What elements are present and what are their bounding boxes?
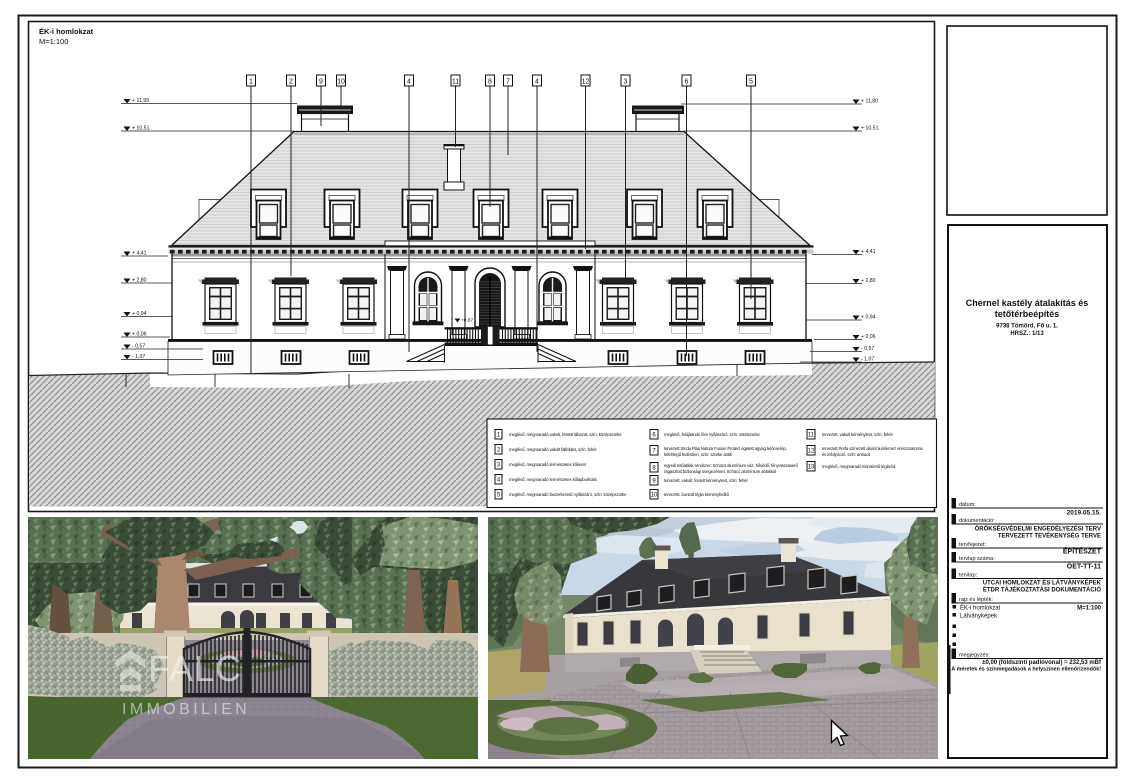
svg-text:9738 Tömörd, Fő u. 1.: 9738 Tömörd, Fő u. 1. <box>996 324 1058 330</box>
svg-text:M=1:100: M=1:100 <box>39 37 68 46</box>
svg-text:tervlap:: tervlap: <box>959 573 978 579</box>
svg-text:11: 11 <box>808 433 815 439</box>
svg-text:+ 0,94: + 0,94 <box>861 315 876 321</box>
svg-text:meglévő, megmaradó kisméretű t: meglévő, megmaradó kisméretű tégla-fal <box>822 464 895 469</box>
svg-text:+ 2,80: + 2,80 <box>132 278 147 284</box>
svg-text:és lefolyócső, szín: antracit: és lefolyócső, szín: antracit <box>822 452 871 457</box>
svg-text:ÉK-i homlokzat: ÉK-i homlokzat <box>960 605 1001 612</box>
svg-text:4: 4 <box>535 79 539 86</box>
svg-text:+ 11,99: + 11,99 <box>132 98 149 104</box>
svg-text:6: 6 <box>685 79 689 86</box>
svg-text:9: 9 <box>319 79 323 86</box>
svg-text:10: 10 <box>651 493 658 499</box>
svg-text:kétrétegű fedésben, szín: szür: kétrétegű fedésben, szín: szürke antik <box>664 452 733 457</box>
svg-text:+ 10,51: + 10,51 <box>861 126 879 132</box>
svg-text:- 0,57: - 0,57 <box>132 344 145 350</box>
svg-text:ÉTDR TÁJÉKOZTATÁSI DOKUMENTÁCI: ÉTDR TÁJÉKOZTATÁSI DOKUMENTÁCIÓ <box>983 586 1101 594</box>
svg-text:ÉK-i homlokzat: ÉK-i homlokzat <box>39 27 94 36</box>
svg-text:TERVEZETT TEVÉKENYSÉG TERVE: TERVEZETT TEVÉKENYSÉG TERVE <box>998 532 1101 540</box>
svg-text:8: 8 <box>488 79 492 86</box>
svg-text:2: 2 <box>289 79 293 86</box>
svg-text:- 0,57: - 0,57 <box>861 346 874 352</box>
svg-text:dokumentáció:: dokumentáció: <box>959 518 995 524</box>
svg-text:3: 3 <box>624 79 628 86</box>
svg-text:10: 10 <box>337 79 345 86</box>
svg-text:2019.05.15.: 2019.05.15. <box>1067 510 1102 517</box>
svg-text:11: 11 <box>452 79 459 86</box>
svg-text:- 1,07: - 1,07 <box>132 354 145 360</box>
svg-text:+ 10,51: + 10,51 <box>132 126 150 132</box>
svg-text:ragasztott biztonsági üvegezés: ragasztott biztonsági üvegezéssel, Schüc… <box>664 469 776 474</box>
svg-text:Látványképek: Látványképek <box>960 614 998 620</box>
svg-text:7: 7 <box>506 79 510 86</box>
svg-text:+ 0,06: + 0,06 <box>132 332 147 338</box>
svg-text:1: 1 <box>249 79 253 86</box>
svg-text:meglévő, megmaradó természetes: meglévő, megmaradó természetes kőlapburk… <box>509 477 598 482</box>
svg-text:megjegyzés:: megjegyzés: <box>959 653 990 659</box>
svg-text:5: 5 <box>749 79 753 86</box>
svg-text:UTCAI HOMLOKZAT ÉS LÁTVÁNYKÉPE: UTCAI HOMLOKZAT ÉS LÁTVÁNYKÉPEK <box>983 579 1102 587</box>
svg-text:±0,00 (földszinti padlóvonal): ±0,00 (földszinti padlóvonal) = 232,53 m… <box>982 660 1102 666</box>
svg-text:ÉPÍTÉSZET: ÉPÍTÉSZET <box>1063 547 1102 556</box>
svg-text:egyedi tetőablak-rendszer: Sch: egyedi tetőablak-rendszer: Schüco alumín… <box>664 463 799 468</box>
svg-text:13: 13 <box>808 465 815 471</box>
svg-text:meglévő, megmaradó vakolt, fes: meglévő, megmaradó vakolt, festett lábaz… <box>509 432 622 437</box>
svg-text:FALC: FALC <box>148 648 242 689</box>
svg-text:tervezett, vakolt, festett kém: tervezett, vakolt, festett kéménytest, s… <box>664 478 748 483</box>
svg-text:IMMOBILIEN: IMMOBILIEN <box>122 701 250 718</box>
svg-text:tervezett Prefa színezett alum: tervezett Prefa színezett alumíniumlemez… <box>822 446 923 451</box>
svg-text:M=1:100: M=1:100 <box>1077 606 1102 612</box>
svg-text:tervezett, vakolt kéménytest,: tervezett, vakolt kéménytest, szín: fehé… <box>822 432 893 437</box>
svg-text:+ 4,41: + 4,41 <box>132 251 147 257</box>
svg-text:tervfejezet:: tervfejezet: <box>959 542 986 548</box>
svg-text:rajz és lépték:: rajz és lépték: <box>959 597 993 603</box>
svg-text:A méretek és színmegadások a h: A méretek és színmegadások a helyszínen … <box>951 667 1101 673</box>
svg-text:12: 12 <box>808 449 815 455</box>
svg-text:Chernel kastély átalakítás és: Chernel kastély átalakítás és <box>966 298 1089 308</box>
svg-text:+ 4,41: + 4,41 <box>861 249 876 255</box>
svg-text:tervezett Sindu Plas Natura Fu: tervezett Sindu Plas Natura Fusion Prote… <box>664 446 787 451</box>
svg-text:+ 2,80: + 2,80 <box>861 278 876 284</box>
svg-text:+ 0,06: + 0,06 <box>861 334 876 340</box>
svg-text:meglévő, megmaradó természetes: meglévő, megmaradó természetes kőkeret <box>509 462 587 467</box>
svg-text:meglévő, felújítandó fém nyílá: meglévő, felújítandó fém nyílászáró, szí… <box>664 432 760 437</box>
svg-text:dátum:: dátum: <box>959 502 976 508</box>
svg-text:meglévő, megmaradó vakolt falf: meglévő, megmaradó vakolt falfelület, sz… <box>509 447 597 452</box>
svg-text:tervlap száma:: tervlap száma: <box>959 556 995 562</box>
svg-text:tervezett, bontott tégla kémén: tervezett, bontott tégla kéményfedkő <box>664 492 730 497</box>
svg-text:+ 0,94: + 0,94 <box>132 311 147 317</box>
svg-text:ÖET-TT-11: ÖET-TT-11 <box>1067 562 1101 571</box>
svg-text:tetőtérbeépítés: tetőtérbeépítés <box>995 309 1060 319</box>
svg-text:HRSZ.: 1/13: HRSZ.: 1/13 <box>1010 331 1044 337</box>
svg-text:+0,87: +0,87 <box>461 318 473 324</box>
svg-text:12: 12 <box>582 79 590 86</box>
svg-text:+ 11,80: + 11,80 <box>861 99 878 105</box>
svg-text:meglévő, megmaradó faszerkezet: meglévő, megmaradó faszerkezetű nyílászá… <box>509 492 627 497</box>
svg-text:- 1,07: - 1,07 <box>861 357 874 363</box>
svg-text:4: 4 <box>407 79 411 86</box>
svg-text:ÖRÖKSÉGVÉDELMI ENGEDÉLYEZÉSI T: ÖRÖKSÉGVÉDELMI ENGEDÉLYEZÉSI TERV <box>975 525 1101 533</box>
